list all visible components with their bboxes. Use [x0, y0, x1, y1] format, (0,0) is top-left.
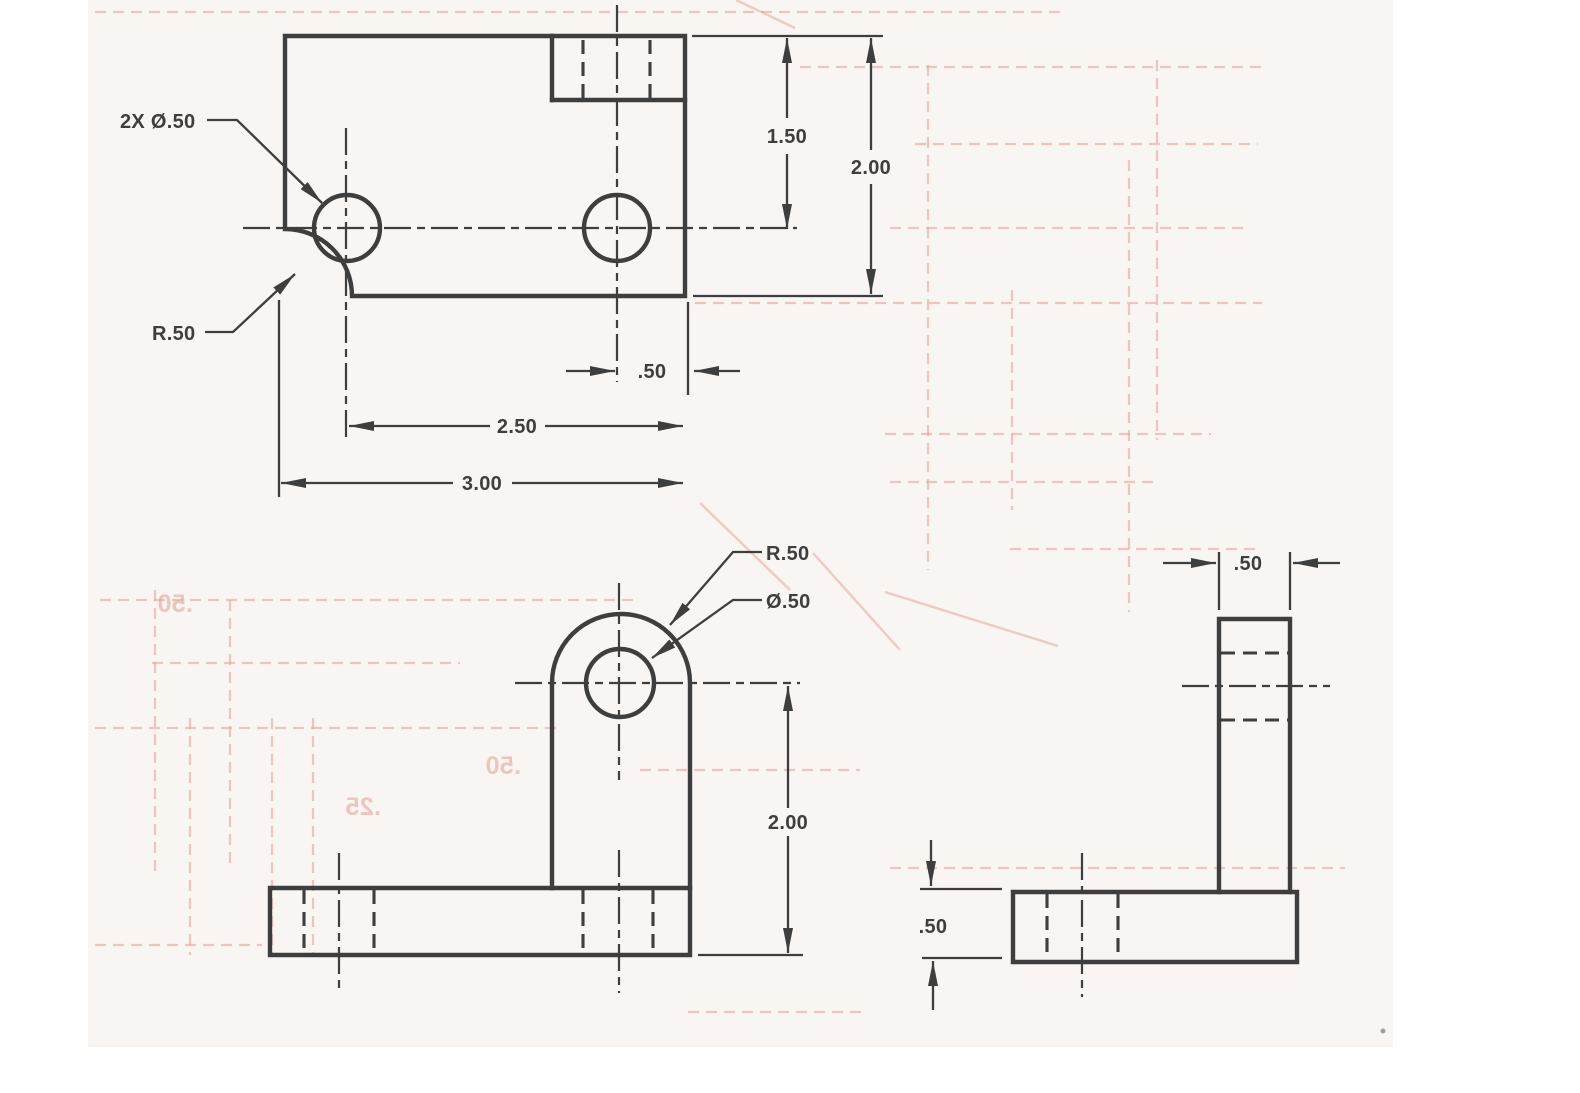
dimension-text: 3.00: [462, 473, 502, 495]
callout-text: R.50: [766, 543, 809, 565]
ghost-text: .50: [485, 752, 521, 780]
callout-text: 2X Ø.50: [120, 111, 195, 133]
dimension-text: .50: [919, 916, 948, 938]
callout-text: R.50: [152, 323, 195, 345]
dimension-text: 2.50: [497, 416, 537, 438]
dimension-text: 1.50: [767, 126, 807, 148]
callout-text: Ø.50: [766, 591, 811, 613]
scanned-drawing-page: .50 .25 .50 1.50 2.00: [0, 0, 1580, 1093]
ghost-text: .50: [157, 590, 193, 618]
dimension-text: .50: [638, 361, 667, 383]
dimension-text: .50: [1234, 553, 1263, 575]
dimension-text: 2.00: [768, 812, 808, 834]
engineering-drawing: .50 .25 .50 1.50 2.00: [0, 0, 1580, 1093]
ghost-text: .25: [345, 793, 381, 821]
scan-speck: [1381, 1029, 1386, 1034]
dimension-text: 2.00: [851, 157, 891, 179]
